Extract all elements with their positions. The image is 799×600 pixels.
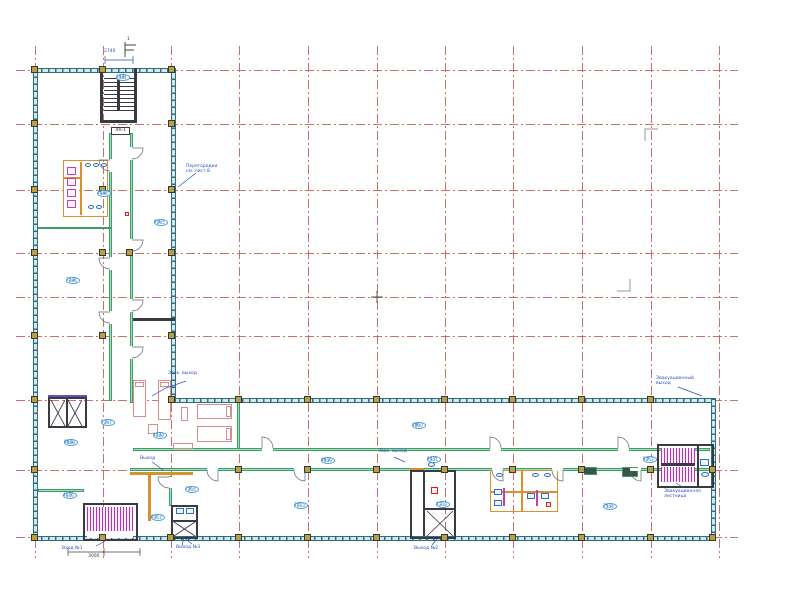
line-path xyxy=(678,387,702,396)
line-path xyxy=(552,470,563,481)
line-path xyxy=(207,470,218,481)
line-path xyxy=(630,470,641,481)
line-path xyxy=(617,279,630,291)
line-path xyxy=(99,312,110,323)
line-path xyxy=(99,160,110,171)
line-path xyxy=(618,437,629,448)
line-path xyxy=(394,457,405,462)
line-path xyxy=(262,437,273,448)
line-path xyxy=(68,400,82,426)
line-path xyxy=(178,173,196,187)
line-path xyxy=(96,540,107,546)
line-path xyxy=(158,477,169,488)
line-path xyxy=(645,129,658,141)
line-path xyxy=(490,437,501,448)
line-path xyxy=(105,56,133,64)
line-path xyxy=(371,291,383,303)
line-path xyxy=(427,511,453,536)
line-path xyxy=(152,462,163,470)
line-path xyxy=(132,347,143,358)
line-path xyxy=(125,42,136,57)
line-path xyxy=(294,470,305,481)
line-path xyxy=(182,537,184,546)
line-path xyxy=(152,381,186,396)
line-path xyxy=(174,522,195,536)
line-path xyxy=(99,258,110,269)
line-path xyxy=(186,539,192,544)
line-path xyxy=(492,470,503,481)
line-path xyxy=(51,400,65,426)
line-path xyxy=(432,539,437,545)
line-path xyxy=(132,148,143,159)
line-path xyxy=(132,240,143,251)
line-path xyxy=(132,300,143,311)
line-path xyxy=(676,483,684,488)
linework-overlay xyxy=(0,0,799,600)
floorplan-sheet: ЛК-1120114,620416,82059,420672,32075,220… xyxy=(0,0,799,600)
line-path xyxy=(68,548,140,556)
